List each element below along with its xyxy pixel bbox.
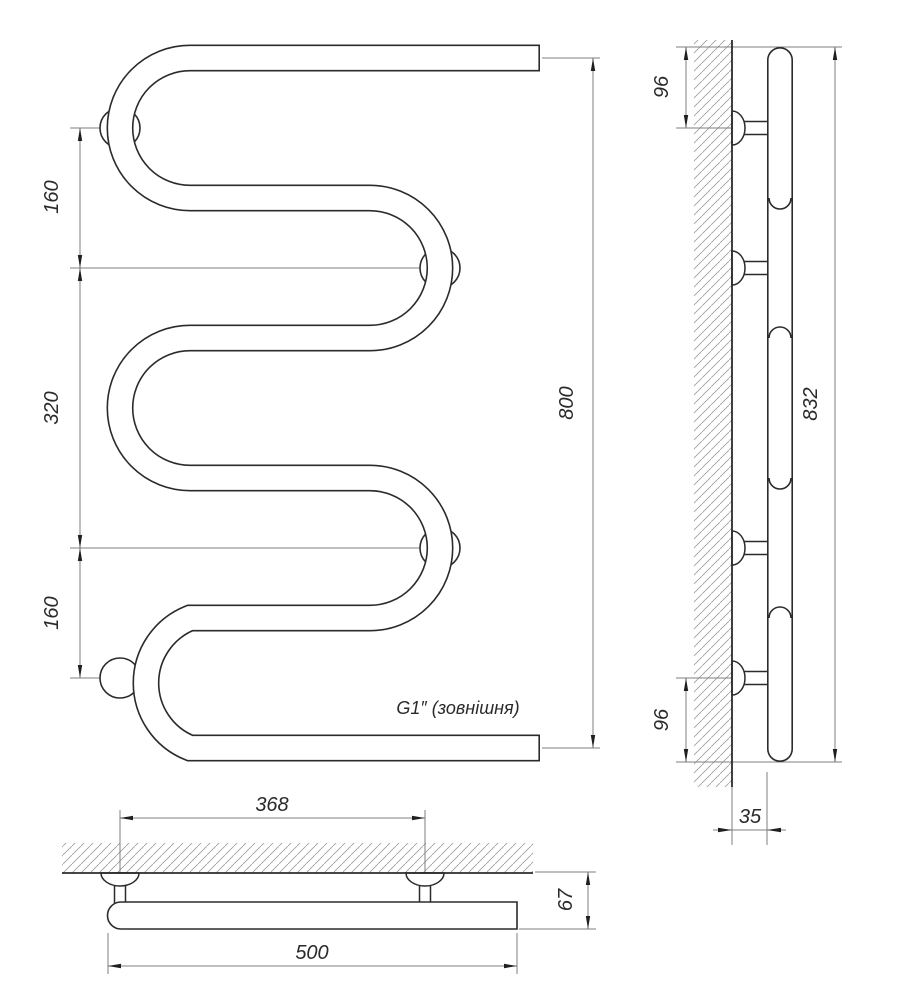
dim-label-832: 832: [800, 387, 822, 420]
dim-label-800: 800: [556, 386, 578, 419]
plan-view: 368 500 67: [62, 794, 596, 974]
plan-dimension-lines: 368 500 67: [108, 794, 596, 974]
side-view: 96 832 96 35: [651, 40, 842, 845]
dim-label-160-bottom: 160: [41, 596, 63, 629]
tube-outline: [120, 58, 540, 748]
side-tube: [769, 60, 791, 749]
bracket-stem: [742, 122, 768, 135]
arrowhead: [767, 828, 781, 832]
plan-tube: [108, 902, 518, 929]
thread-label: G1″ (зовнішня): [396, 698, 519, 718]
bracket-flange: [732, 531, 745, 565]
arrowhead: [78, 665, 82, 678]
bracket-flange: [732, 111, 745, 145]
arrowhead: [78, 548, 82, 561]
arrowhead: [718, 828, 732, 832]
arrowhead: [684, 678, 688, 691]
towel-rail-drawing: 160 320 160 800 G1″ (зовнішня): [0, 0, 900, 1000]
arrowhead: [833, 47, 837, 60]
arrowhead: [684, 115, 688, 128]
bracket-flange: [732, 251, 745, 285]
front-tube: [120, 45, 540, 762]
dim-label-96-top: 96: [651, 75, 673, 98]
bracket-stem: [742, 672, 768, 685]
bracket-flange: [101, 873, 139, 886]
arrowhead: [504, 964, 517, 968]
wall-hatch: [62, 843, 533, 873]
side-dimension-lines: 96 832 96 35: [651, 47, 842, 845]
arrowhead: [833, 749, 837, 762]
bracket-flange: [406, 873, 444, 886]
bracket-stem: [742, 542, 768, 555]
front-view: 160 320 160 800 G1″ (зовнішня): [41, 45, 600, 762]
dim-label-160-top: 160: [41, 180, 63, 213]
bracket-stem: [742, 262, 768, 275]
dim-label-35: 35: [739, 806, 762, 828]
arrowhead: [78, 128, 82, 141]
arrowhead: [586, 916, 590, 929]
arrowhead: [684, 749, 688, 762]
plan-wall-brackets: [101, 873, 444, 904]
dim-label-500: 500: [295, 942, 328, 964]
arrowhead: [586, 872, 590, 885]
side-wall-brackets: [732, 111, 768, 695]
arrowhead: [108, 964, 121, 968]
technical-drawing-page: 160 320 160 800 G1″ (зовнішня): [0, 0, 900, 1000]
dim-label-320: 320: [41, 391, 63, 424]
dim-label-96-bottom: 96: [651, 708, 673, 731]
wall-hatch: [694, 40, 732, 787]
arrowhead: [78, 255, 82, 268]
dim-label-67: 67: [555, 888, 577, 911]
arrowhead: [684, 47, 688, 60]
arrowhead: [120, 816, 133, 820]
arrowhead: [591, 735, 595, 748]
arrowhead: [78, 268, 82, 281]
dim-label-368: 368: [255, 794, 288, 816]
arrowhead: [591, 58, 595, 71]
arrowhead: [412, 816, 425, 820]
tube-fill: [120, 58, 540, 748]
bracket-flange: [732, 661, 745, 695]
arrowhead: [78, 535, 82, 548]
